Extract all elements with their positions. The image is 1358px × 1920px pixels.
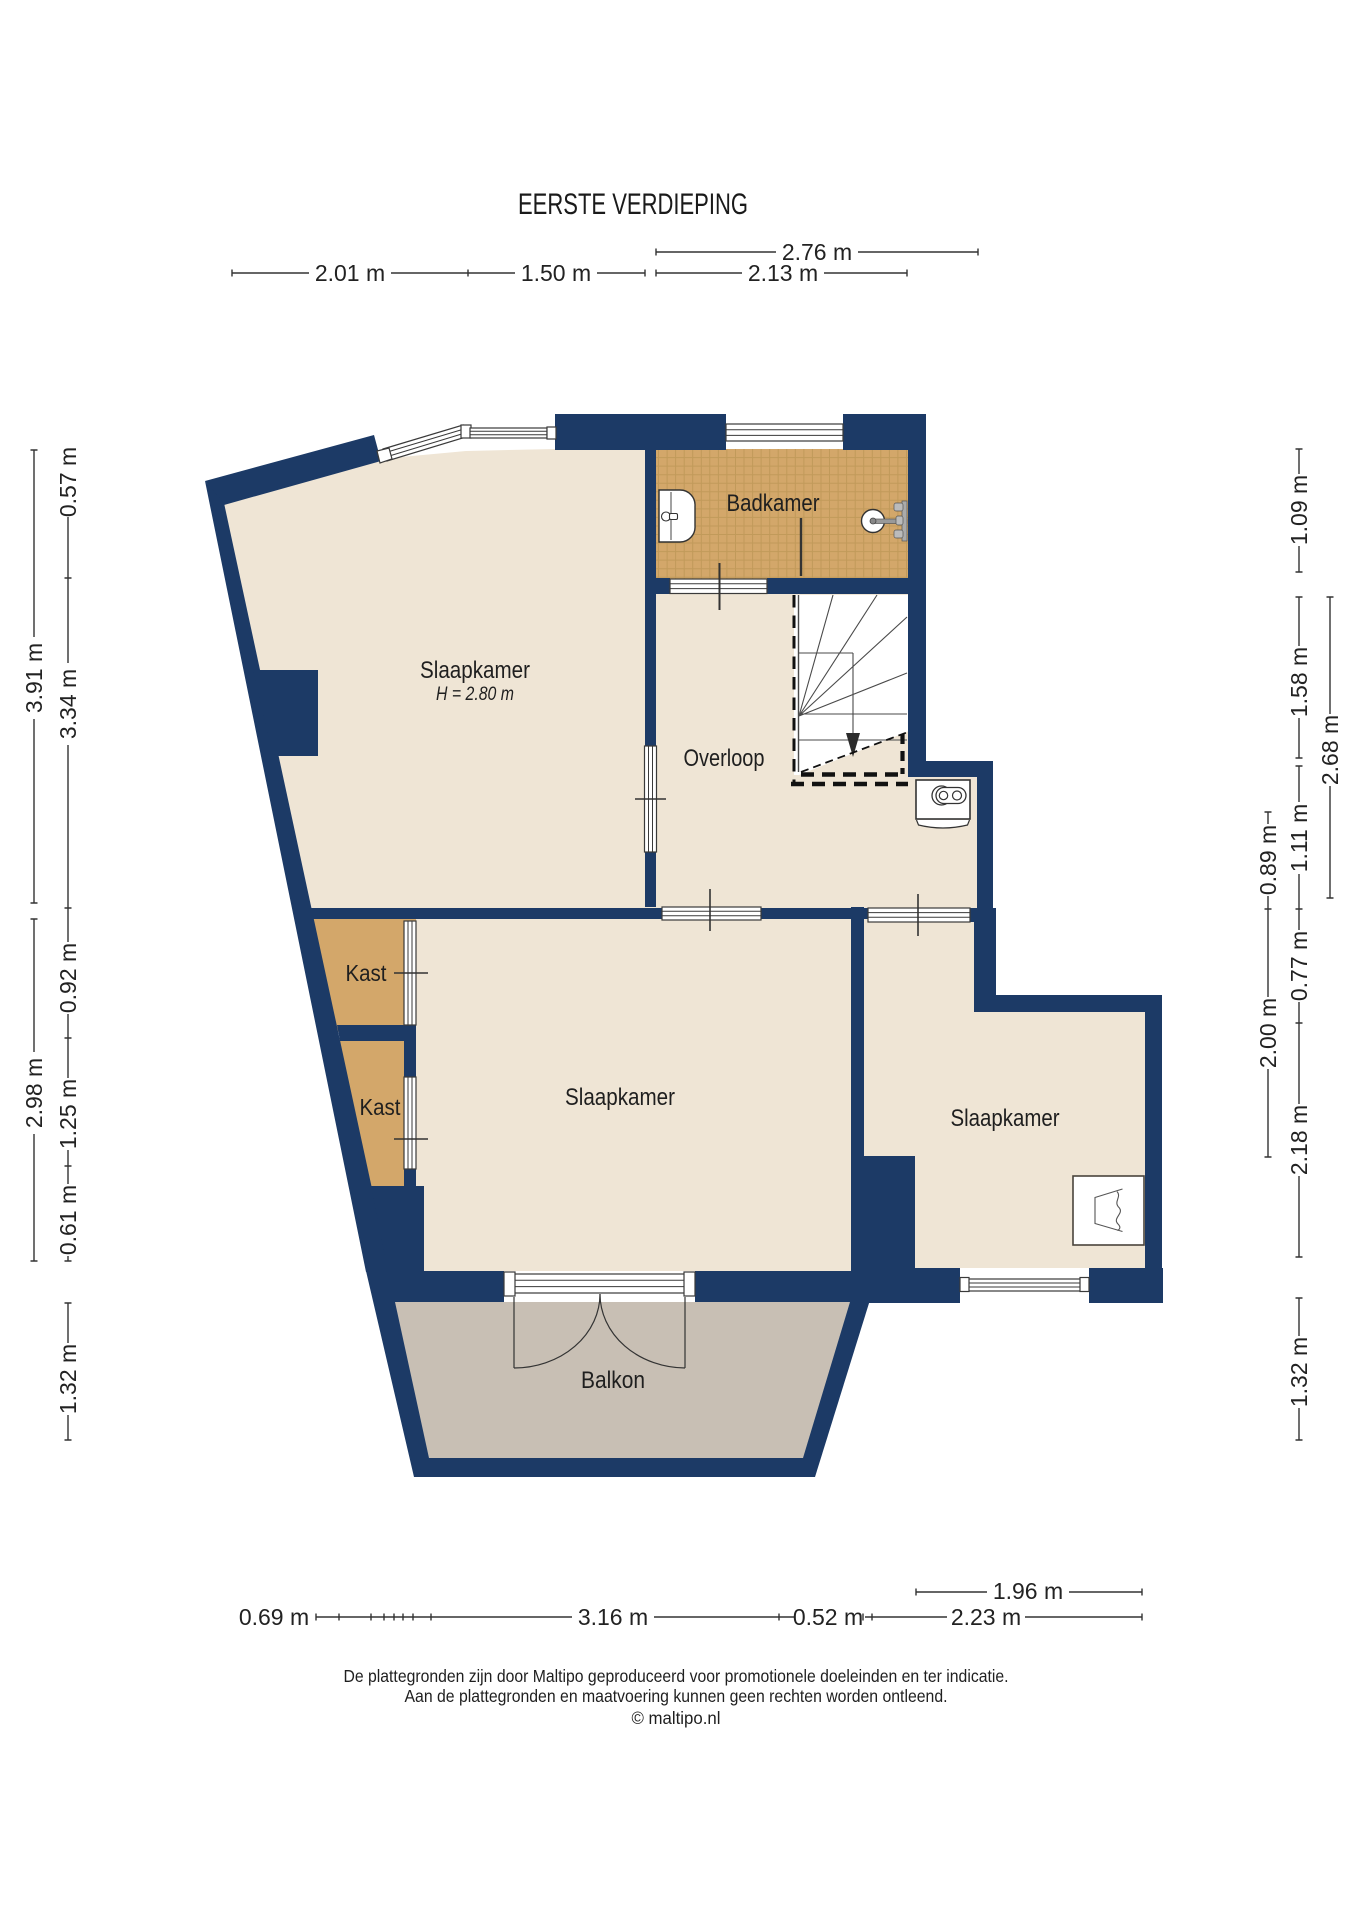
svg-text:Aan de plattegronden en maatvo: Aan de plattegronden en maatvoering kunn… <box>405 1686 948 1706</box>
svg-text:2.18 m: 2.18 m <box>1286 1105 1312 1175</box>
svg-text:0.92 m: 0.92 m <box>55 943 81 1013</box>
svg-text:2.00 m: 2.00 m <box>1255 998 1281 1068</box>
svg-text:Overloop: Overloop <box>684 745 765 772</box>
svg-text:2.68 m: 2.68 m <box>1317 715 1343 785</box>
svg-text:Slaapkamer: Slaapkamer <box>420 657 530 684</box>
svg-text:2.01 m: 2.01 m <box>315 260 385 286</box>
svg-text:1.32 m: 1.32 m <box>1286 1337 1312 1407</box>
svg-text:3.16 m: 3.16 m <box>578 1604 648 1630</box>
svg-text:Badkamer: Badkamer <box>727 490 820 517</box>
svg-text:2.98 m: 2.98 m <box>21 1058 47 1128</box>
svg-text:EERSTE VERDIEPING: EERSTE VERDIEPING <box>518 188 748 221</box>
svg-text:1.09 m: 1.09 m <box>1286 475 1312 545</box>
svg-text:2.23 m: 2.23 m <box>951 1604 1021 1630</box>
svg-text:Slaapkamer: Slaapkamer <box>565 1084 675 1111</box>
svg-text:0.77 m: 0.77 m <box>1286 931 1312 1001</box>
svg-text:0.89 m: 0.89 m <box>1255 825 1281 895</box>
svg-text:Kast: Kast <box>360 1094 402 1120</box>
svg-text:1.58 m: 1.58 m <box>1286 647 1312 717</box>
svg-text:0.69 m: 0.69 m <box>239 1604 309 1630</box>
svg-text:Balkon: Balkon <box>581 1367 645 1394</box>
svg-text:1.96 m: 1.96 m <box>993 1578 1063 1604</box>
svg-text:1.50 m: 1.50 m <box>521 260 591 286</box>
svg-text:2.13 m: 2.13 m <box>748 260 818 286</box>
svg-text:De plattegronden zijn door Mal: De plattegronden zijn door Maltipo gepro… <box>344 1666 1009 1686</box>
svg-text:Kast: Kast <box>346 960 388 986</box>
svg-text:1.11 m: 1.11 m <box>1286 804 1312 873</box>
svg-text:3.91 m: 3.91 m <box>21 643 47 713</box>
svg-text:1.25 m: 1.25 m <box>55 1079 81 1149</box>
svg-text:3.34 m: 3.34 m <box>55 669 81 739</box>
svg-text:Slaapkamer: Slaapkamer <box>951 1105 1060 1132</box>
svg-text:0.52 m: 0.52 m <box>793 1604 863 1630</box>
svg-text:0.61 m: 0.61 m <box>55 1185 81 1255</box>
svg-text:0.57 m: 0.57 m <box>55 447 81 517</box>
svg-text:1.32 m: 1.32 m <box>55 1344 81 1414</box>
svg-text:H = 2.80 m: H = 2.80 m <box>436 684 514 705</box>
svg-text:© maltipo.nl: © maltipo.nl <box>632 1708 721 1728</box>
